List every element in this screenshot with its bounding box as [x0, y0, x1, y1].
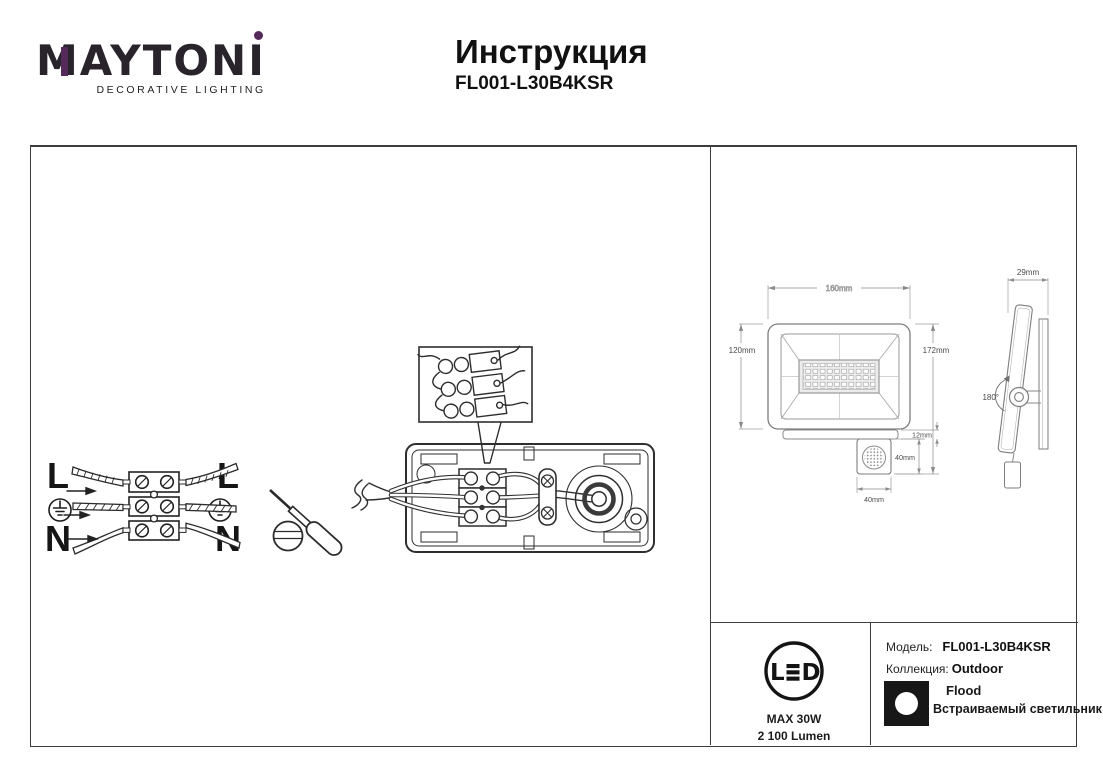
wire-ground-right [179, 504, 236, 512]
led-array [803, 364, 875, 390]
max-power: MAX 30W [767, 712, 822, 726]
wire-neutral-left [73, 528, 130, 554]
led-mark: L D MAX 30W 2 100 Lumen [711, 623, 871, 744]
luminous-flux: 2 100 Lumen [758, 729, 831, 743]
spec-row: L D MAX 30W 2 100 Lumen Модель:FL001-L30… [711, 622, 1078, 745]
line-label-left: L [47, 455, 69, 496]
dim-sensor-width: 40mm [864, 495, 884, 504]
led-e-bars [787, 664, 800, 681]
neutral-label-left: N [45, 518, 71, 559]
page-title: Инструкция [455, 33, 648, 71]
dimensions-panel: 160mm 120mm 172mm 12mm 40mm 40mm [711, 147, 1078, 622]
brand-text: MAYTONI [36, 36, 266, 85]
dim-sensor-height: 40mm [895, 453, 915, 462]
cable-gland [566, 466, 632, 532]
terminal-block [129, 472, 179, 540]
wire-line-left [72, 467, 130, 486]
brand-i-dot [254, 31, 263, 40]
dim-width: 160mm [826, 284, 853, 293]
wire-ground-left [73, 503, 130, 511]
led-letter-l: L [770, 660, 785, 686]
brand-logo: MAYTONI DECORATIVE LIGHTING [36, 40, 266, 96]
type-icon-circle [895, 692, 918, 715]
installation-panel: L L N N [31, 147, 711, 745]
collection-label: Коллекция: [886, 662, 949, 676]
instruction-page: { "header": { "brand": "MAYTONI", "tagli… [0, 0, 1103, 777]
front-view [768, 324, 910, 474]
title-block: Инструкция FL001-L30B4KSR [455, 33, 648, 95]
dim-depth-lines [1008, 278, 1048, 315]
model-label: Модель: [886, 640, 932, 654]
dim-total-height: 172mm [923, 346, 950, 355]
model-value: FL001-L30B4KSR [942, 639, 1050, 654]
dim-swivel-angle: 180° [982, 393, 999, 402]
motion-sensor-front [857, 439, 891, 474]
installation-diagram: L L N N [31, 147, 709, 745]
motion-sensor-side [1005, 462, 1021, 488]
wiring-diagram: L L N N [45, 455, 241, 559]
screwdriver-icon [270, 490, 345, 558]
dimension-drawing: 160mm 120mm 172mm 12mm 40mm 40mm [711, 147, 1078, 622]
brand-wordmark: MAYTONI [36, 40, 266, 82]
model-spec-cell: Модель:FL001-L30B4KSR Коллекция:Outdoor … [871, 623, 1078, 745]
dim-bracket: 12mm [912, 431, 932, 440]
led-spec-cell: L D MAX 30W 2 100 Lumen [711, 623, 871, 745]
type-description: Встраиваемый светильник [933, 702, 1102, 716]
dim-height: 120mm [729, 346, 756, 355]
collection-value: Outdoor [952, 661, 1003, 676]
incoming-cable [352, 480, 391, 510]
page-model-number: FL001-L30B4KSR [455, 73, 648, 95]
junction-box [352, 444, 654, 552]
content-frame: L L N N [30, 145, 1077, 747]
type-icon [884, 681, 929, 726]
side-view: 29mm 180° [982, 268, 1048, 488]
brand-tagline: DECORATIVE LIGHTING [36, 85, 266, 96]
collection-row: Коллекция:Outdoor [886, 661, 1003, 676]
dim-depth: 29mm [1017, 268, 1040, 277]
type-value: Flood [946, 683, 981, 698]
model-row: Модель:FL001-L30B4KSR [886, 639, 1051, 654]
brand-m-accent-stroke [61, 47, 68, 76]
led-letter-d: D [802, 660, 821, 686]
